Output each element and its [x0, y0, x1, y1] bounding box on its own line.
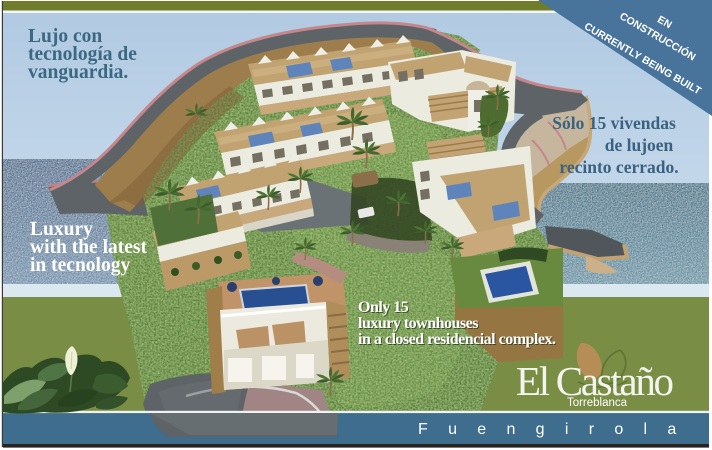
- svg-text:vanguardia.: vanguardia.: [28, 62, 128, 83]
- svg-text:de lujoen: de lujoen: [605, 135, 674, 155]
- svg-text:Torreblanca: Torreblanca: [567, 397, 628, 409]
- svg-text:Sólo 15 vivendas: Sólo 15 vivendas: [552, 113, 676, 133]
- svg-text:luxury townhouses: luxury townhouses: [358, 315, 478, 332]
- svg-text:Only 15: Only 15: [358, 299, 409, 316]
- svg-text:Fuengirola: Fuengirola: [418, 421, 697, 438]
- svg-text:in tecnology: in tecnology: [30, 255, 130, 276]
- svg-text:recinto cerrado.: recinto cerrado.: [559, 157, 678, 177]
- svg-text:in a closed residencial comple: in a closed residencial complex.: [358, 331, 556, 348]
